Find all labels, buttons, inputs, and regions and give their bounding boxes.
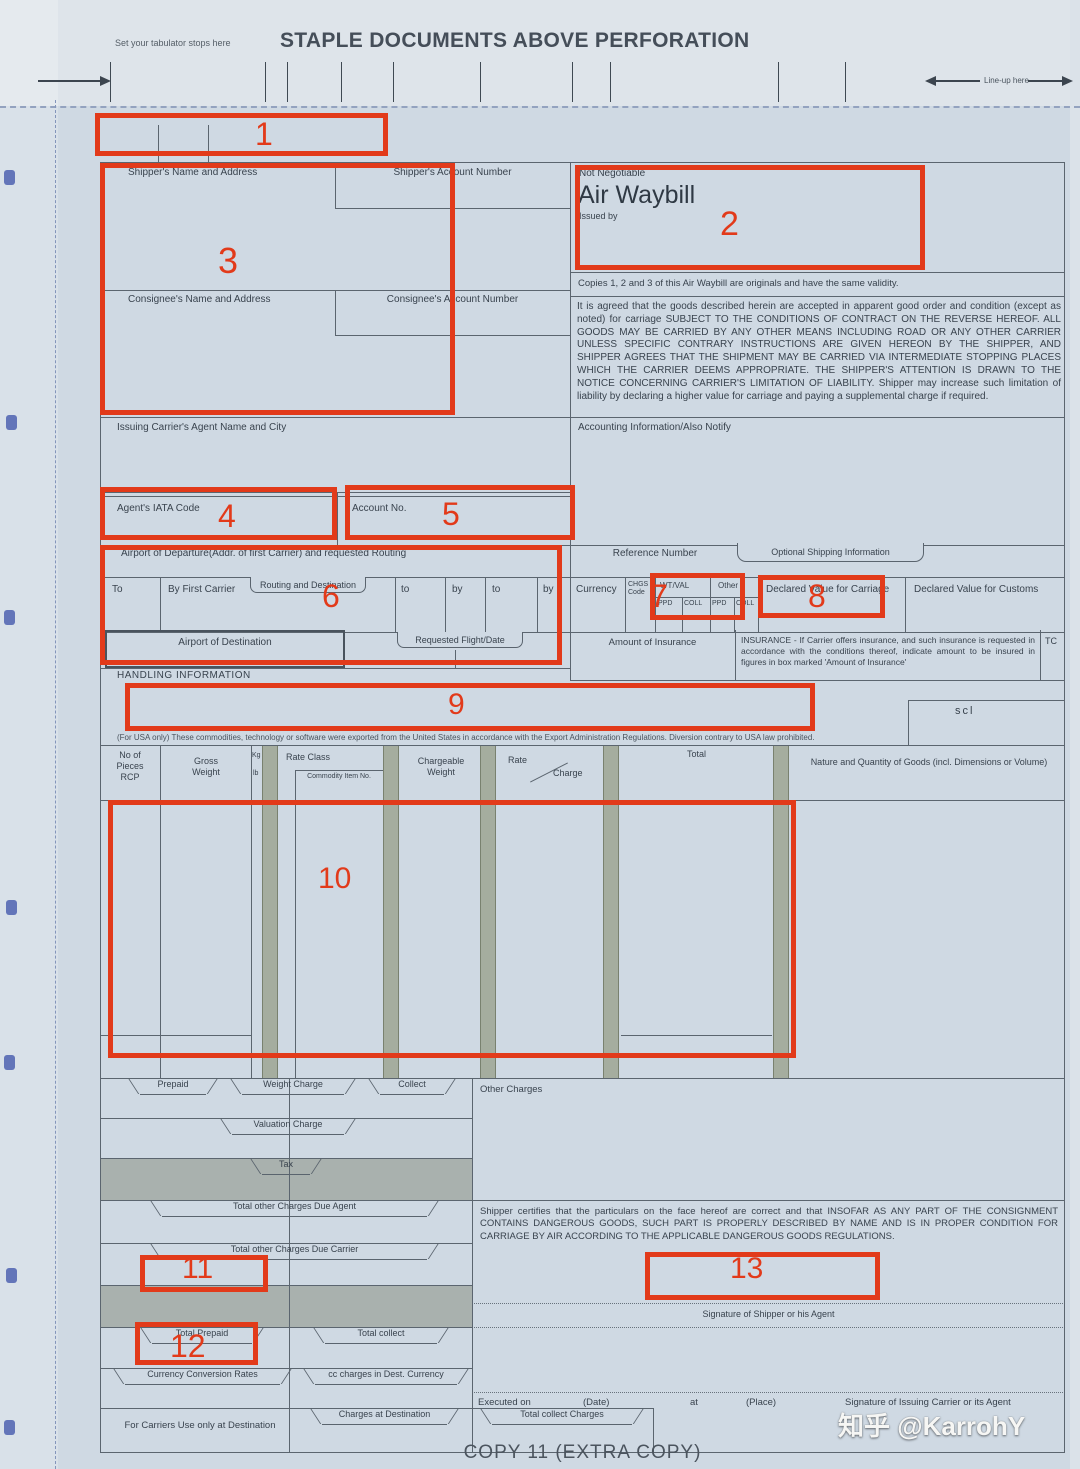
collect-cell: Collect — [380, 1078, 444, 1095]
kg-header: Kg — [252, 752, 261, 760]
form-rule — [570, 296, 1065, 297]
tick-mark — [393, 62, 394, 102]
annotation-number: 3 — [218, 240, 238, 282]
annotation-number: 8 — [808, 578, 826, 615]
lineup-line — [1028, 80, 1064, 82]
tabulator-note: Set your tabulator stops here — [115, 38, 231, 49]
annotation-number: 2 — [720, 205, 739, 244]
optional-shipping-tab: Optional Shipping Information — [737, 543, 924, 562]
tick-mark — [287, 62, 288, 102]
scan-mark — [4, 1055, 15, 1070]
form-rule — [570, 162, 571, 680]
total-collect-charges-label: Total collect Charges — [520, 1408, 604, 1422]
carriers-use-label: For Carriers Use only at Destination — [105, 1419, 295, 1432]
form-rule — [570, 272, 1065, 273]
annotation-box-3 — [100, 163, 455, 415]
sci-label: scl — [955, 705, 974, 718]
form-rule — [908, 700, 909, 745]
lb-header: lb — [253, 770, 258, 778]
total-collect-charges-cell: Total collect Charges — [492, 1408, 632, 1425]
total-collect-label: Total collect — [357, 1327, 404, 1341]
annotation-number: 6 — [322, 578, 340, 615]
form-rule — [905, 577, 906, 632]
chargeable-weight-header: Chargeable Weight — [413, 756, 469, 778]
cc-charges-cell: cc charges in Dest. Currency — [315, 1368, 457, 1385]
insurance-note: INSURANCE - If Carrier offers insurance,… — [741, 635, 1035, 668]
weight-charge-label: Weight Charge — [263, 1078, 323, 1092]
tick-mark — [480, 62, 481, 102]
optional-shipping-label: Optional Shipping Information — [771, 547, 890, 557]
form-rule — [908, 700, 1065, 701]
charges-destination-cell: Charges at Destination — [322, 1408, 447, 1425]
handling-information-label: HANDLING INFORMATION — [117, 670, 251, 682]
left-arrowhead-icon — [925, 76, 936, 86]
place-label: (Place) — [746, 1397, 776, 1408]
pieces-header: No of Pieces RCP — [108, 750, 152, 782]
left-perforation-line — [55, 100, 56, 1469]
charge-header: Charge — [553, 768, 583, 779]
scan-mark — [4, 610, 15, 625]
annotation-number: 1 — [255, 116, 273, 153]
perforation-line — [0, 106, 1080, 108]
collect-label: Collect — [398, 1078, 426, 1092]
right-arrowhead-icon — [1062, 76, 1073, 86]
annotation-number: 12 — [170, 1328, 206, 1365]
cc-charges-label: cc charges in Dest. Currency — [328, 1368, 444, 1382]
valuation-charge-cell: Valuation Charge — [232, 1118, 344, 1135]
left-margin — [0, 0, 58, 1469]
weight-charge-cell: Weight Charge — [242, 1078, 344, 1095]
certification-text: Shipper certifies that the particulars o… — [480, 1206, 1058, 1243]
page-title: STAPLE DOCUMENTS ABOVE PERFORATION — [280, 28, 750, 53]
total-header: Total — [621, 749, 772, 760]
dotted-rule — [472, 1392, 1065, 1393]
form-rule — [100, 745, 1065, 746]
tick-mark — [610, 62, 611, 102]
tick-mark — [265, 62, 266, 102]
amount-insurance-label: Amount of Insurance — [570, 637, 735, 648]
lineup-label: Line-up here — [984, 76, 1029, 86]
tick-mark — [845, 62, 846, 102]
at-label: at — [690, 1397, 698, 1408]
currency-label: Currency — [576, 584, 617, 596]
annotation-number: 7 — [650, 578, 668, 615]
executed-on-label: Executed on — [478, 1397, 531, 1408]
form-rule — [570, 680, 1065, 681]
lineup-line — [936, 80, 980, 82]
total-collect-cell: Total collect — [325, 1327, 437, 1344]
dotted-rule — [472, 1303, 1065, 1304]
annotation-box-1 — [95, 113, 388, 156]
tick-mark — [341, 62, 342, 102]
accounting-info-label: Accounting Information/Also Notify — [578, 422, 731, 434]
chgs-code-label: Code — [628, 589, 645, 597]
scan-mark — [4, 1420, 15, 1435]
shipper-signature-label: Signature of Shipper or his Agent — [472, 1309, 1065, 1320]
form-rule — [295, 770, 383, 771]
tax-cell: Tax — [262, 1158, 310, 1175]
copies-note: Copies 1, 2 and 3 of this Air Waybill ar… — [578, 278, 899, 289]
watermark: 知乎 @KarrohY — [838, 1406, 1025, 1443]
charges-destination-label: Charges at Destination — [339, 1408, 431, 1422]
conditions-text: It is agreed that the goods described he… — [577, 301, 1061, 403]
form-rule — [625, 577, 626, 632]
commodity-header: Commodity Item No. — [297, 773, 381, 781]
other-charges-label: Other Charges — [480, 1084, 542, 1095]
annotation-box-5 — [345, 485, 575, 540]
form-rule — [337, 492, 338, 545]
declared-value-customs-label: Declared Value for Customs — [914, 584, 1038, 596]
form-rule — [100, 417, 1065, 418]
copy-label: COPY 11 (EXTRA COPY) — [100, 1442, 1065, 1465]
annotation-box-10 — [108, 800, 796, 1058]
prepaid-cell: Prepaid — [140, 1078, 206, 1095]
annotation-number: 11 — [182, 1252, 213, 1286]
scan-mark — [6, 900, 17, 915]
due-agent-label: Total other Charges Due Agent — [233, 1200, 356, 1214]
currency-conversion-cell: Currency Conversion Rates — [125, 1368, 280, 1385]
nature-quantity-header: Nature and Quantity of Goods (incl. Dime… — [800, 757, 1058, 768]
tick-mark — [572, 62, 573, 102]
annotation-number: 5 — [442, 496, 460, 533]
annotation-number: 9 — [448, 688, 465, 722]
form-rule — [1064, 162, 1065, 1452]
rate-header: Rate — [508, 755, 527, 766]
form-rule — [735, 630, 736, 680]
annotation-box-2 — [575, 165, 925, 270]
reference-number-label: Reference Number — [575, 548, 735, 560]
annotation-number: 4 — [218, 498, 236, 535]
scan-mark — [6, 415, 17, 430]
tc-label: TC — [1045, 636, 1057, 647]
form-rule — [1040, 630, 1041, 680]
issuing-agent-label: Issuing Carrier's Agent Name and City — [117, 422, 286, 434]
tick-mark — [778, 62, 779, 102]
usa-export-note: (For USA only) These commodities, techno… — [117, 733, 815, 743]
valuation-charge-label: Valuation Charge — [254, 1118, 323, 1132]
tick-mark — [110, 62, 111, 102]
date-label: (Date) — [583, 1397, 609, 1408]
left-arrow-line — [38, 80, 100, 82]
form-rule — [472, 1078, 473, 1452]
dotted-rule — [472, 1327, 1065, 1328]
annotation-number: 10 — [318, 862, 351, 896]
scan-mark — [6, 1268, 17, 1283]
air-waybill-form: Set your tabulator stops here STAPLE DOC… — [0, 0, 1080, 1469]
due-agent-cell: Total other Charges Due Agent — [162, 1200, 427, 1217]
tax-label: Tax — [279, 1158, 293, 1172]
right-margin — [1070, 0, 1080, 1469]
form-rule — [100, 668, 570, 669]
scan-mark — [4, 170, 15, 185]
prepaid-label: Prepaid — [157, 1078, 188, 1092]
currency-conversion-label: Currency Conversion Rates — [147, 1368, 258, 1382]
gross-weight-header: Gross Weight — [179, 756, 233, 778]
annotation-number: 13 — [730, 1252, 763, 1286]
annotation-box-9 — [125, 683, 815, 731]
rate-class-header: Rate Class — [286, 752, 330, 763]
